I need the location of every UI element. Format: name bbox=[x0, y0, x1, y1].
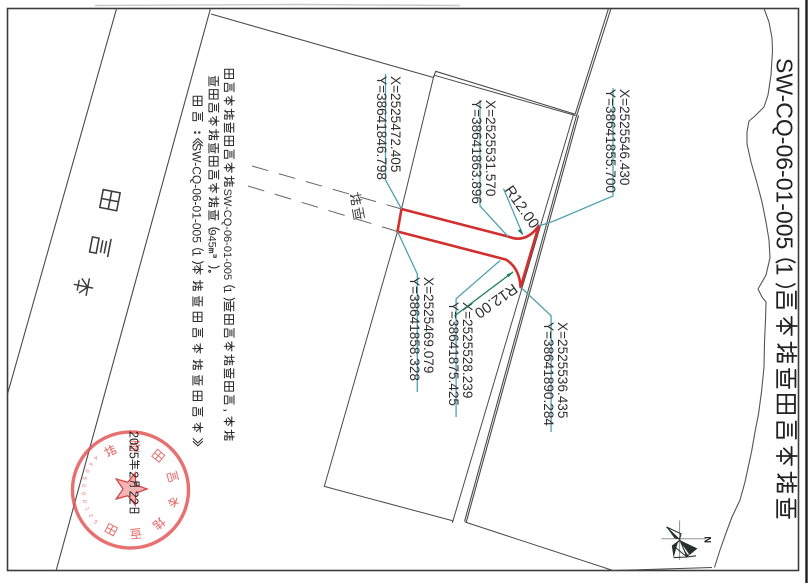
svg-text:X=2525536.435: X=2525536.435 bbox=[555, 322, 570, 418]
svg-text:1: 1 bbox=[221, 287, 233, 293]
svg-text:5: 5 bbox=[81, 476, 88, 480]
svg-text:Y=38641858.328: Y=38641858.328 bbox=[407, 277, 422, 381]
svg-text:0: 0 bbox=[81, 499, 88, 503]
svg-text:2: 2 bbox=[87, 513, 94, 519]
svg-text:Y=38641890.284: Y=38641890.284 bbox=[541, 322, 556, 426]
svg-text:4: 4 bbox=[87, 461, 94, 467]
svg-text:X=2525469.079: X=2525469.079 bbox=[421, 277, 436, 373]
svg-text:X=2525531.570: X=2525531.570 bbox=[483, 100, 498, 197]
svg-text:4: 4 bbox=[92, 454, 98, 460]
svg-text:Y=38641855.700: Y=38641855.700 bbox=[603, 89, 618, 193]
svg-text:1: 1 bbox=[772, 263, 798, 276]
svg-text:22: 22 bbox=[127, 491, 141, 505]
svg-text:Y=38641875.425: Y=38641875.425 bbox=[446, 302, 461, 406]
svg-text:SW-CQ-06-01-005: SW-CQ-06-01-005 bbox=[772, 58, 798, 249]
svg-text:R12.00: R12.00 bbox=[501, 183, 543, 232]
svg-text:0: 0 bbox=[83, 468, 90, 473]
svg-text:R12.00: R12.00 bbox=[471, 280, 520, 322]
svg-text:X=2525528.239: X=2525528.239 bbox=[460, 302, 475, 398]
svg-text:0: 0 bbox=[80, 492, 86, 496]
svg-text:Y=38641846.798: Y=38641846.798 bbox=[374, 76, 389, 180]
svg-text:SW-CQ-06-01-005: SW-CQ-06-01-005 bbox=[221, 189, 233, 281]
svg-text:0: 0 bbox=[80, 484, 86, 488]
svg-text:Y=38641863.896: Y=38641863.896 bbox=[469, 100, 484, 204]
svg-text:X=2525546.430: X=2525546.430 bbox=[617, 89, 632, 186]
svg-text:945: 945 bbox=[206, 229, 218, 247]
svg-text:X=2525472.405: X=2525472.405 bbox=[388, 76, 403, 172]
svg-text:SW-CQ-06-01-005: SW-CQ-06-01-005 bbox=[190, 143, 204, 243]
svg-text:2: 2 bbox=[127, 471, 141, 478]
svg-text:N: N bbox=[703, 537, 713, 544]
svg-text:2025: 2025 bbox=[127, 431, 141, 459]
svg-text:1: 1 bbox=[190, 250, 204, 257]
svg-text:5: 5 bbox=[92, 519, 98, 525]
svg-text:1: 1 bbox=[83, 507, 90, 512]
